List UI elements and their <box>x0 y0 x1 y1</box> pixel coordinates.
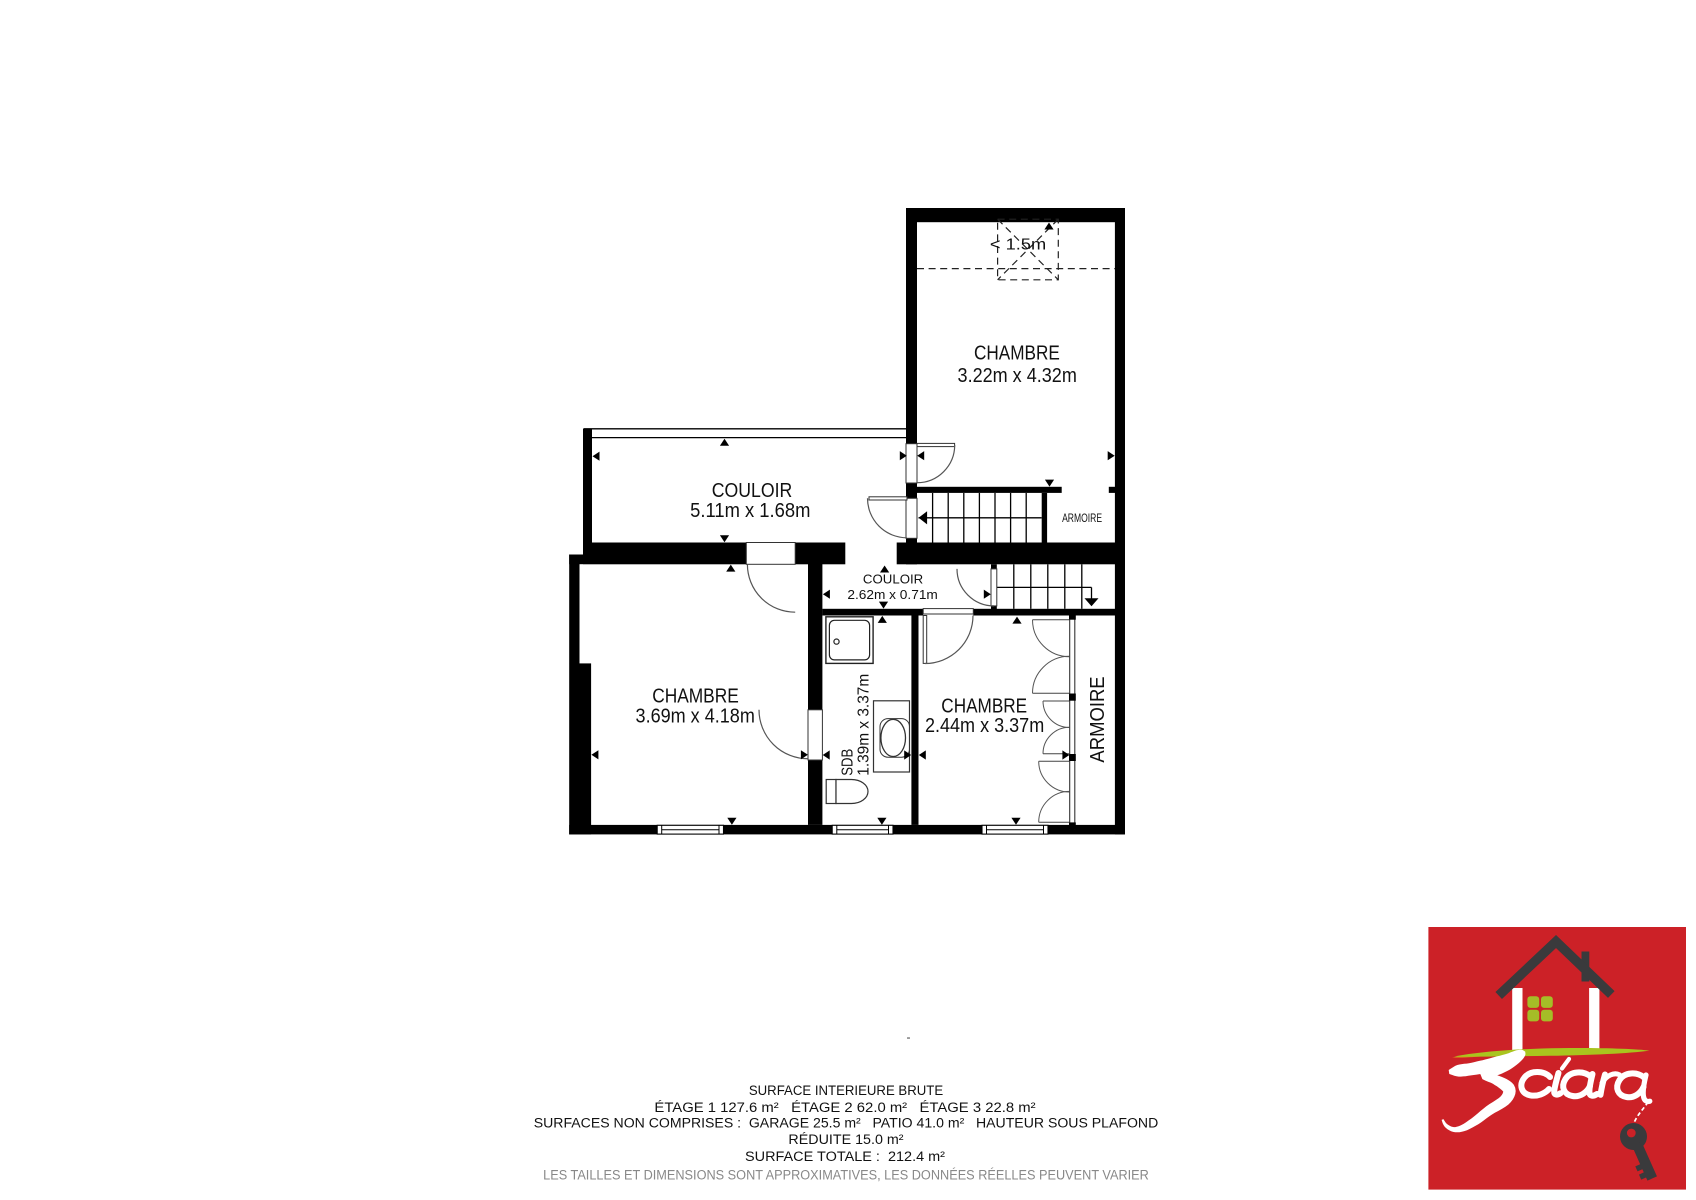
svg-text:SDB: SDB <box>839 749 856 776</box>
svg-text:CHAMBRE: CHAMBRE <box>974 343 1060 365</box>
svg-text:RÉDUITE 15.0 m²: RÉDUITE 15.0 m² <box>788 1132 904 1147</box>
svg-text:CHAMBRE: CHAMBRE <box>652 686 739 708</box>
svg-text:LES TAILLES ET DIMENSIONS SONT: LES TAILLES ET DIMENSIONS SONT APPROXIMA… <box>543 1167 1149 1182</box>
svg-text:ÉTAGE 1 127.6 m² ÉTAGE 2 62.: ÉTAGE 1 127.6 m² ÉTAGE 2 62.0 m² ÉTAGE 3… <box>654 1100 1036 1115</box>
svg-text:SURFACES NON COMPRISES : GARA: SURFACES NON COMPRISES : GARAGE 25.5 m² … <box>534 1115 1159 1130</box>
svg-text:ARMOIRE: ARMOIRE <box>1062 511 1102 525</box>
svg-text:-: - <box>907 1030 911 1044</box>
svg-text:SURFACE TOTALE : 212.4 m²: SURFACE TOTALE : 212.4 m² <box>745 1149 946 1164</box>
svg-text:1.39m x 3.37m: 1.39m x 3.37m <box>855 674 872 776</box>
svg-text:COULOIR: COULOIR <box>712 480 793 502</box>
svg-text:< 1.5m: < 1.5m <box>990 237 1046 254</box>
svg-text:COULOIR: COULOIR <box>863 571 923 586</box>
svg-text:3.69m x 4.18m: 3.69m x 4.18m <box>636 706 755 728</box>
svg-text:ARMOIRE: ARMOIRE <box>1087 676 1109 762</box>
svg-text:3.22m x 4.32m: 3.22m x 4.32m <box>958 365 1077 387</box>
svg-text:2.44m x 3.37m: 2.44m x 3.37m <box>925 715 1044 737</box>
svg-text:SURFACE INTERIEURE BRUTE: SURFACE INTERIEURE BRUTE <box>749 1083 943 1098</box>
svg-text:5.11m x 1.68m: 5.11m x 1.68m <box>690 500 810 522</box>
svg-text:2.62m x 0.71m: 2.62m x 0.71m <box>847 587 938 602</box>
